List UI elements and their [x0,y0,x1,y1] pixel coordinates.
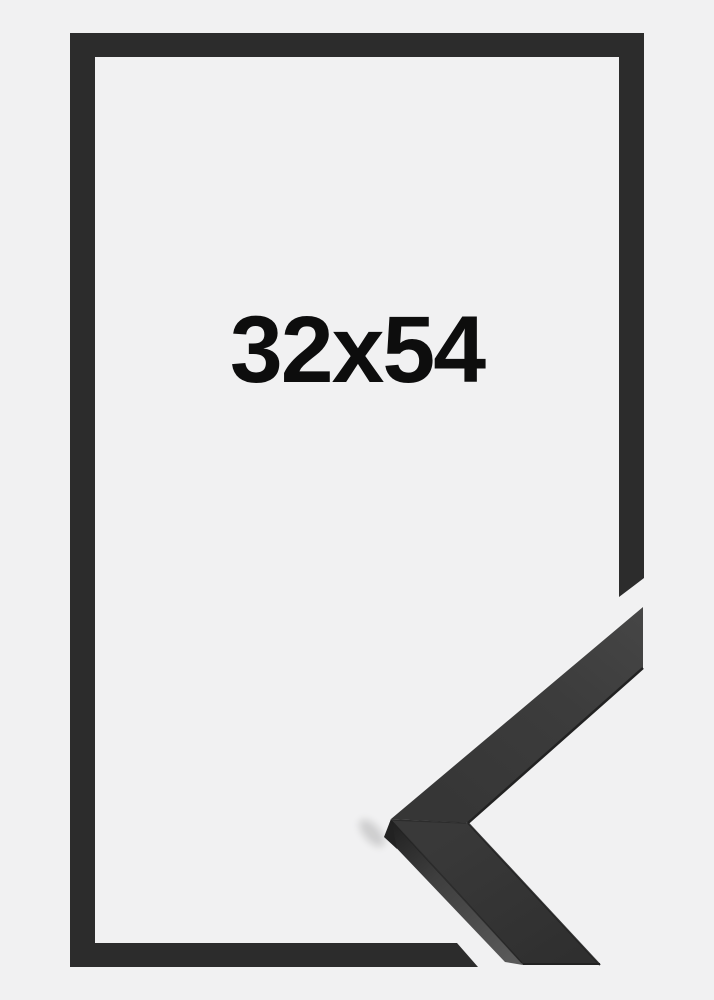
frame-size-label: 32x54 [230,297,486,403]
frame-product-image: 32x54 [0,0,714,1000]
backdrop [0,0,714,1000]
frame-size-graphic: 32x54 [0,0,714,1000]
